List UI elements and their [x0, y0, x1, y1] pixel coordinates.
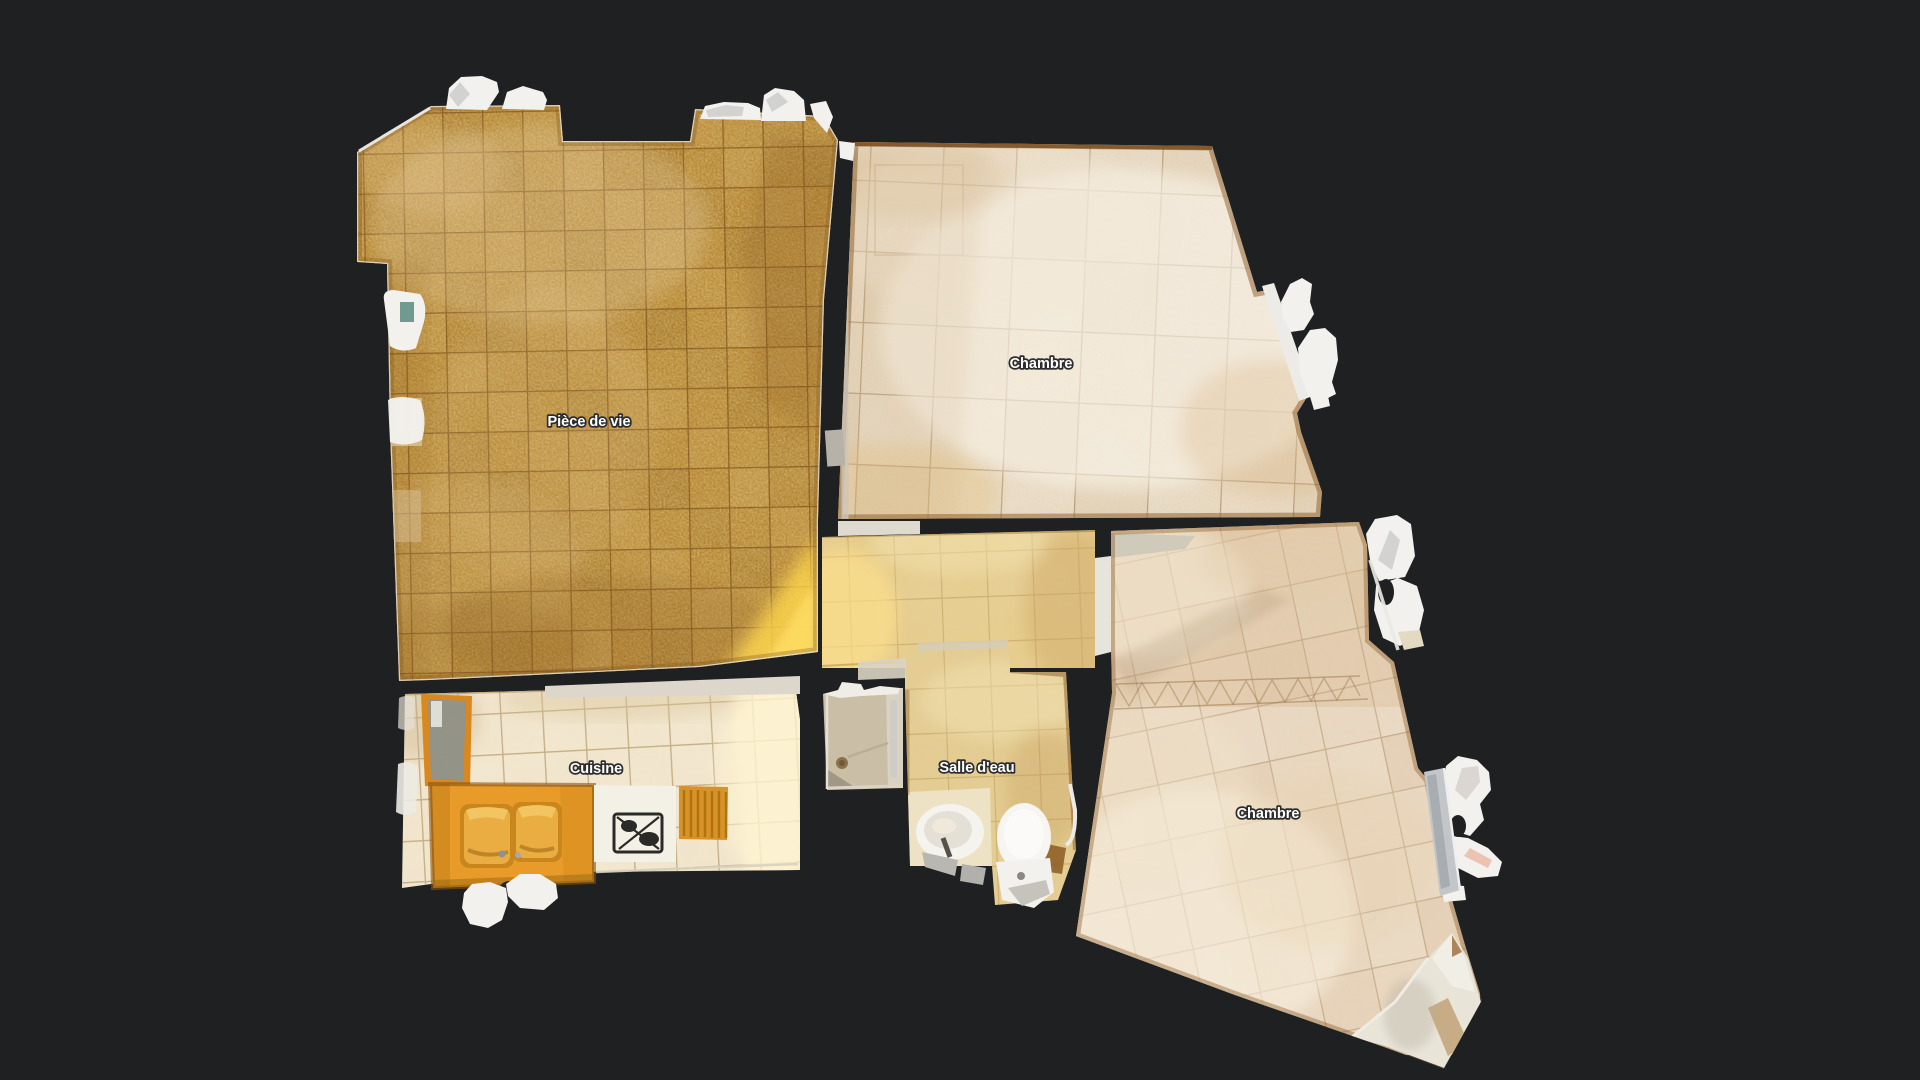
svg-text:Cuisine: Cuisine [570, 761, 622, 777]
svg-text:Salle d'eau: Salle d'eau [939, 760, 1014, 776]
svg-text:Chambre: Chambre [1010, 356, 1073, 372]
svg-text:Pièce de vie: Pièce de vie [547, 414, 630, 430]
svg-text:Chambre: Chambre [1237, 806, 1300, 822]
